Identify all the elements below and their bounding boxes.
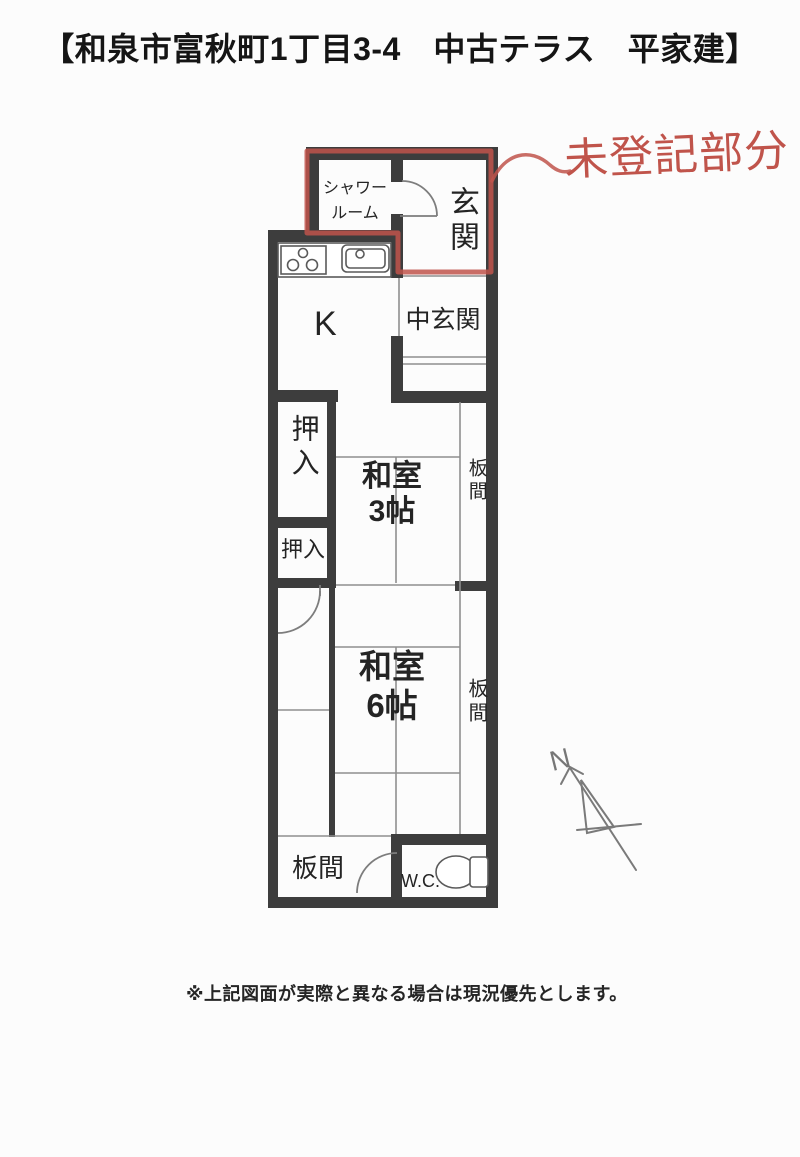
room-washitsu3-line1: 和室 (337, 459, 447, 494)
room-oshiire-lower-label: 押入 (272, 537, 334, 563)
corridor-door-arc (278, 591, 320, 633)
footnote: ※上記図面が実際と異なる場合は現況優先とします。 (186, 980, 628, 1006)
wall-room-divider-right (455, 581, 498, 591)
wall-oshiire-divider (268, 517, 336, 528)
red-pointer-curve (492, 155, 570, 181)
wall-oshiire2-bottom (268, 578, 336, 588)
room-washitsu6-line2: 6帖 (335, 687, 449, 726)
room-shower-label: シャワー ルーム (316, 177, 394, 227)
wall-left-outer (268, 230, 278, 908)
room-washitsu3-line2: 3帖 (337, 494, 447, 529)
sink-drain (356, 250, 364, 258)
room-washitsu3-label: 和室 3帖 (337, 459, 447, 530)
stove-burner-right (307, 260, 318, 271)
room-kitchen-label: K (314, 304, 337, 345)
stove-burner-left (288, 260, 299, 271)
room-washitsu6-line1: 和室 (335, 648, 449, 687)
room-itanoma-upper-label: 板間 (464, 458, 487, 504)
stove-burner-top (299, 249, 308, 258)
room-shower-line1: シャワー (316, 177, 394, 202)
room-itanoma-bottom-label: 板間 (280, 853, 356, 884)
compass-fletching (581, 780, 614, 833)
room-itanoma-middle-label: 板間 (464, 678, 488, 726)
genkan-door-arc (402, 181, 437, 216)
room-wc-label: W.C. (401, 871, 440, 893)
sink-basin (346, 249, 385, 268)
room-washitsu6-label: 和室 6帖 (335, 648, 449, 726)
toilet-tank (470, 857, 488, 887)
floor-plan-page: 【和泉市富秋町1丁目3-4 中古テラス 平家建】 (0, 0, 800, 1157)
toilet-icon (436, 856, 488, 888)
room-naka-genkan-label: 中玄関 (399, 305, 487, 335)
wall-mid-right (391, 391, 498, 403)
north-compass-icon (561, 767, 641, 870)
kitchen-counter (278, 243, 391, 277)
wall-bottom (268, 897, 498, 908)
compass-shaft (570, 768, 636, 870)
room-shower-line2: ルーム (316, 202, 394, 227)
room-oshiire-upper-label: 押入 (287, 414, 321, 482)
unregistered-annotation-text: 未登記部分 (563, 114, 791, 188)
room-genkan-label: 玄関 (443, 186, 479, 256)
wall-wc-top (391, 834, 498, 845)
